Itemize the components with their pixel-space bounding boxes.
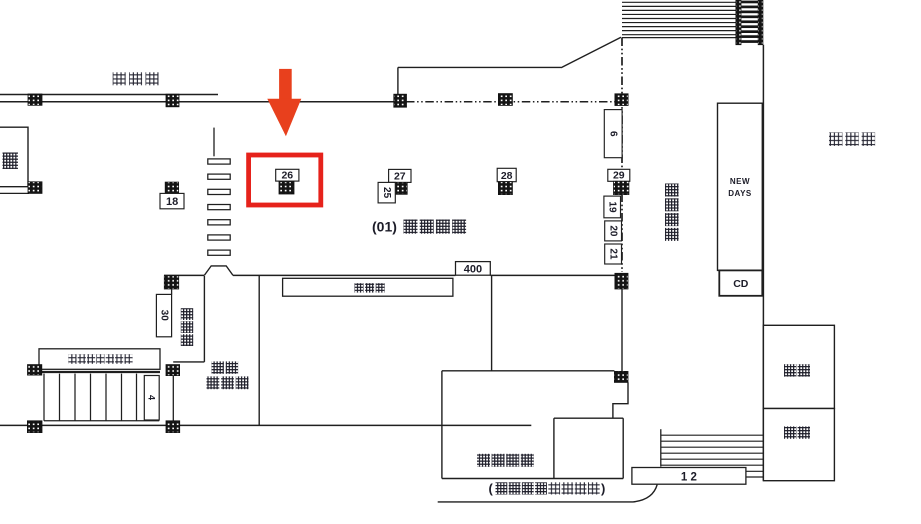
svg-text:19: 19 (607, 201, 618, 213)
svg-text:29: 29 (613, 170, 625, 182)
svg-text:1 2: 1 2 (681, 471, 697, 483)
svg-text:25: 25 (381, 187, 392, 199)
svg-text:(01): (01) (372, 219, 397, 235)
svg-text:NEW: NEW (730, 177, 750, 186)
svg-text:): ) (601, 481, 605, 496)
svg-text:18: 18 (166, 196, 178, 208)
svg-text:CD: CD (733, 278, 749, 290)
svg-text:21: 21 (608, 248, 619, 260)
svg-text:26: 26 (281, 170, 293, 182)
svg-text:(: ( (489, 481, 494, 496)
svg-text:28: 28 (501, 170, 513, 182)
svg-text:27: 27 (394, 171, 406, 183)
svg-text:4: 4 (147, 395, 157, 400)
svg-text:DAYS: DAYS (728, 189, 752, 198)
svg-text:20: 20 (608, 225, 619, 237)
svg-text:400: 400 (464, 263, 482, 275)
svg-text:30: 30 (158, 310, 169, 322)
svg-text:6: 6 (608, 131, 619, 137)
